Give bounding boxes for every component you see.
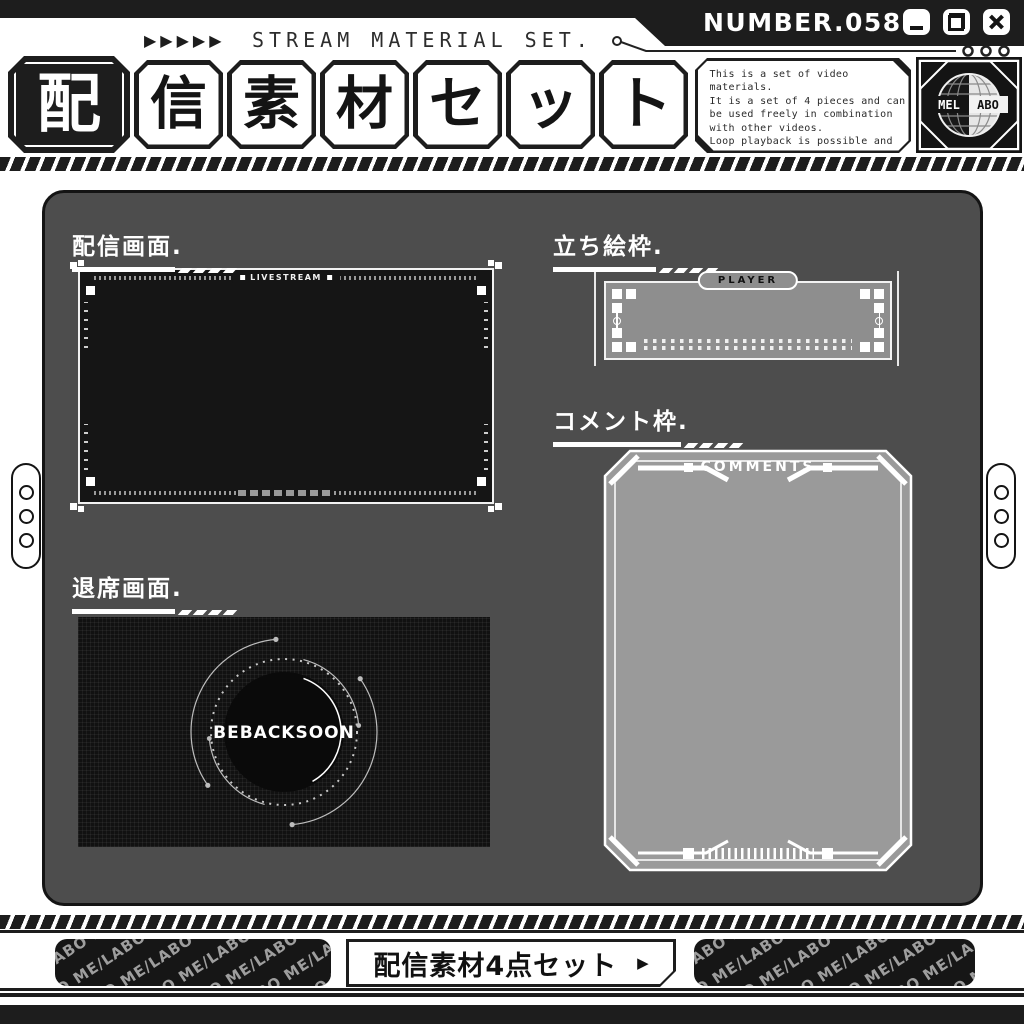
melabo-pattern-strip: ME/LABO ME/LABO ME/LABO ME/LABO ME/LABO … [55, 939, 331, 986]
title-badge-dark: 配 [8, 56, 130, 153]
underline-dash [177, 610, 192, 615]
title-char: ッ [522, 76, 579, 133]
section-title: 立ち絵枠. [553, 227, 664, 261]
frame-footer [602, 848, 914, 859]
frame-dash-segment [238, 490, 334, 496]
side-handle-left [11, 463, 41, 569]
title-char: 配 [37, 73, 101, 137]
square-glyph [823, 463, 832, 472]
divider-line [0, 993, 1024, 997]
hazard-stripes [0, 915, 1024, 929]
livestream-frame-preview: LIVESTREAM [78, 268, 494, 504]
trim-mark [897, 271, 899, 366]
header-line [648, 466, 676, 469]
frame-title: COMMENTS [701, 459, 816, 475]
underline-dash [683, 443, 698, 448]
deco-square [78, 506, 84, 512]
deco-square [488, 260, 494, 266]
minimize-icon [910, 26, 923, 30]
deco-square [626, 342, 636, 352]
deco-square [495, 262, 502, 269]
edge-ticks [484, 424, 488, 470]
square-glyph [822, 848, 833, 859]
deco-square [477, 286, 486, 295]
title-char: 素 [243, 76, 300, 133]
title-badge: 信 [134, 60, 223, 149]
deco-square [495, 503, 502, 510]
melabo-pattern-strip: ME/LABO ME/LABO ME/LABO ME/LABO ME/LABO … [694, 939, 975, 986]
away-circle-graphic: BEBACKSOON [78, 617, 490, 847]
logo-text-left: MEL [938, 98, 960, 112]
description-line: be used freely in combination [710, 108, 909, 122]
section-label-stream-screen: 配信画面. [72, 227, 183, 273]
title-badge: ト [599, 60, 688, 149]
title-badge: ッ [506, 60, 595, 149]
deco-square [874, 289, 884, 299]
cta-button[interactable]: 配信素材4点セット ▶ [346, 939, 676, 987]
subtitle: STREAM MATERIAL SET. [252, 28, 593, 52]
pattern-text: ME/LABO ME/LABO ME/LABO ME/LABO ME/LABO … [55, 939, 331, 986]
title-badge: 素 [227, 60, 316, 149]
section-underline [553, 440, 741, 448]
edge-ticks [84, 424, 88, 470]
underline-dash [207, 268, 222, 273]
side-handle-right [986, 463, 1016, 569]
cta-arrow-icon: ▶ [637, 954, 649, 972]
underline-dash [698, 443, 713, 448]
description-text: This is a set of video materials. It is … [698, 61, 909, 151]
section-underline [553, 265, 716, 273]
title-char: 材 [336, 76, 393, 133]
frame-header: LIVESTREAM [232, 272, 340, 283]
page: NUMBER.058 ▶▶▶▶▶ STREAM MATERIAL SET. 配 … [0, 0, 1024, 1024]
slider-dot [875, 317, 883, 325]
section-underline [72, 265, 235, 273]
divider-line [0, 930, 1024, 933]
logo-text-right: ABO [977, 98, 999, 112]
edge-ticks [84, 302, 88, 348]
pattern-text: ME/LABO ME/LABO ME/LABO ME/LABO ME/LABO … [694, 939, 975, 986]
description-line: with other videos. [710, 122, 909, 136]
away-text: BEBACKSOON [213, 723, 355, 743]
player-frame-preview: PLAYER [604, 281, 892, 360]
section-label-comment-frame: コメント枠. [553, 402, 689, 448]
description-box: This is a set of video materials. It is … [695, 58, 911, 153]
edge-ticks [484, 302, 488, 348]
deco-square [612, 289, 622, 299]
frame-header: COMMENTS [602, 459, 914, 475]
deco-square [612, 342, 622, 352]
deco-square [874, 342, 884, 352]
square-glyph [327, 275, 332, 280]
melabo-logo: MEL ABO [916, 57, 1022, 153]
slider-dot [613, 317, 621, 325]
cta-label: 配信素材4点セット [373, 944, 617, 983]
minimize-button[interactable] [903, 9, 930, 35]
dot-row [644, 346, 852, 350]
dot-row [644, 339, 852, 343]
title-badge: 材 [320, 60, 409, 149]
restore-button[interactable] [943, 9, 970, 35]
window-number: NUMBER.058 [703, 8, 902, 37]
title-char: セ [429, 76, 486, 133]
section-label-standing-frame: 立ち絵枠. [553, 227, 664, 273]
section-title: 配信画面. [72, 227, 183, 261]
globe-icon: MEL ABO [916, 57, 1022, 153]
deco-square [86, 286, 95, 295]
deco-square [488, 506, 494, 512]
underline-dash [673, 268, 688, 273]
section-title: 退席画面. [72, 569, 183, 603]
trim-mark [594, 271, 596, 366]
hazard-stripes [0, 157, 1024, 171]
underline-dash [658, 268, 673, 273]
close-button[interactable] [983, 9, 1010, 35]
restore-icon [948, 15, 964, 31]
square-glyph [683, 848, 694, 859]
underline-dash [713, 443, 728, 448]
arrows-icon: ▶▶▶▶▶ [144, 31, 226, 50]
divider-line [0, 988, 1024, 991]
section-label-away-screen: 退席画面. [72, 569, 183, 615]
comments-frame-preview: COMMENTS [602, 448, 914, 873]
frame-title: LIVESTREAM [250, 273, 322, 282]
deco-square [860, 342, 870, 352]
underline-dash [192, 610, 207, 615]
title-char: ト [615, 76, 672, 133]
section-title: コメント枠. [553, 402, 689, 436]
deco-square [86, 477, 95, 486]
description-line: This is a set of video materials. [710, 68, 909, 95]
frame-title: PLAYER [698, 271, 798, 290]
title-badge: セ [413, 60, 502, 149]
footer-bar [0, 1005, 1024, 1024]
square-glyph [684, 463, 693, 472]
underline-dash [688, 268, 703, 273]
comments-frame-border [602, 448, 914, 873]
header-line [840, 466, 868, 469]
underline-dash [192, 268, 207, 273]
deco-square [477, 477, 486, 486]
underline-dash [177, 268, 192, 273]
deco-square [626, 289, 636, 299]
deco-square [70, 503, 77, 510]
away-screen-preview: BEBACKSOON [78, 617, 490, 847]
description-line: It is a set of 4 pieces and can [710, 95, 909, 109]
deco-square [860, 289, 870, 299]
description-line: Loop playback is possible and [710, 135, 909, 149]
title-char: 信 [150, 76, 207, 133]
square-glyph [240, 275, 245, 280]
underline-dash [207, 610, 222, 615]
section-underline [72, 607, 235, 615]
tick-strip [702, 848, 814, 859]
cta-inner: 配信素材4点セット ▶ [349, 942, 673, 984]
